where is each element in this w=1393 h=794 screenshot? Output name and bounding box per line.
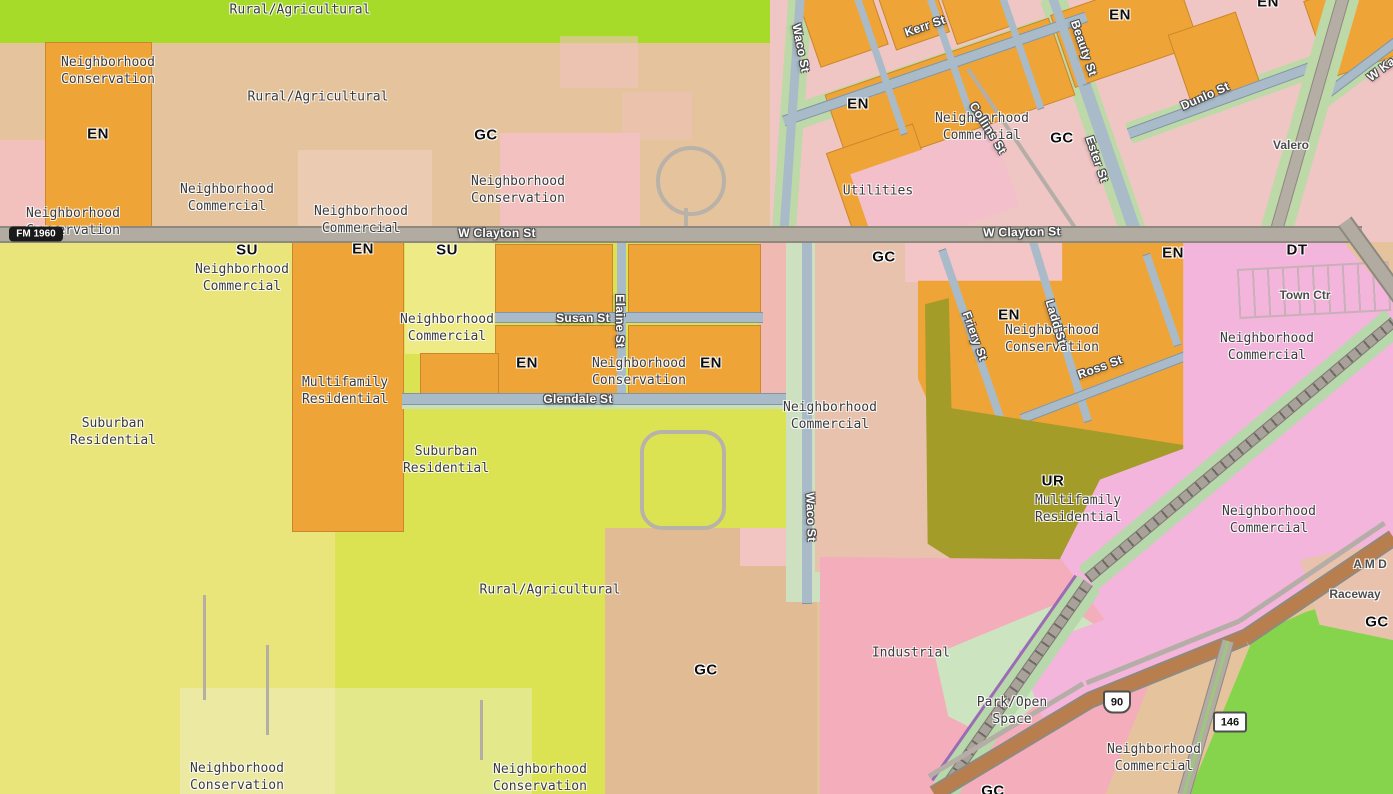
road-loop [656, 146, 726, 216]
zone-en-block[interactable] [628, 325, 761, 400]
road-elaine-st [617, 242, 626, 402]
zone-rural-agricultural-green[interactable] [0, 0, 772, 43]
road-w-clayton-st [0, 226, 1362, 243]
zone-su-commercial-pale[interactable] [405, 242, 495, 354]
map-canvas[interactable]: Rural/AgriculturalNeighborhood Conservat… [0, 0, 1393, 794]
zone-multifamily-column[interactable] [292, 242, 404, 532]
road-loop [640, 430, 726, 530]
road-driveway [203, 595, 206, 700]
road-driveway [266, 645, 269, 735]
road-driveway [480, 700, 483, 760]
zone-salmon-strip[interactable] [759, 242, 787, 402]
zone-en-block[interactable] [495, 244, 613, 320]
zone-en-block[interactable] [628, 244, 761, 320]
road-glendale-st [402, 393, 814, 405]
zone-en-conservation-column[interactable] [45, 42, 152, 234]
zone-pink-patch-b [622, 92, 692, 140]
road-waco-st [802, 242, 812, 604]
zone-pale-patch [298, 150, 432, 232]
zone-en-block[interactable] [495, 325, 620, 400]
zone-commercial-pink-mid[interactable] [500, 133, 640, 232]
parking-rows [1237, 261, 1391, 319]
zone-pink-patch-a [560, 36, 638, 88]
road-susan-st [495, 312, 763, 323]
